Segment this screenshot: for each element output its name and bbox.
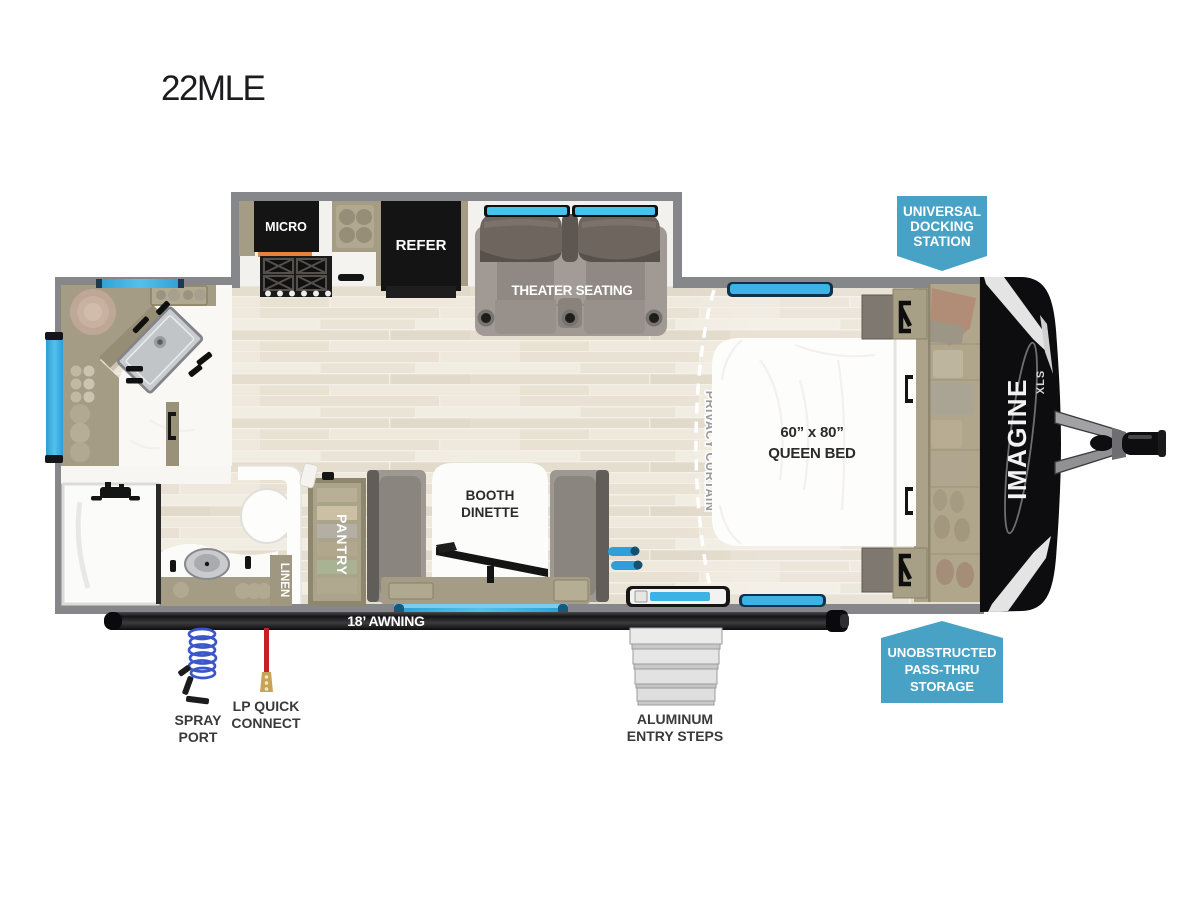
svg-text:ALUMINUM: ALUMINUM xyxy=(637,711,713,727)
svg-text:LP QUICK: LP QUICK xyxy=(233,698,300,714)
svg-text:DOCKING: DOCKING xyxy=(910,219,974,234)
svg-text:PASS-THRU: PASS-THRU xyxy=(905,662,980,677)
svg-text:REFER: REFER xyxy=(396,237,447,254)
svg-text:BOOTH: BOOTH xyxy=(466,488,515,503)
svg-text:XLS: XLS xyxy=(1035,370,1047,394)
svg-text:IMAGINE: IMAGINE xyxy=(1002,378,1032,500)
svg-text:STATION: STATION xyxy=(913,234,970,249)
svg-text:18’ AWNING: 18’ AWNING xyxy=(347,613,425,629)
svg-text:STORAGE: STORAGE xyxy=(910,679,974,694)
svg-text:THEATER SEATING: THEATER SEATING xyxy=(511,283,632,298)
svg-text:PORT: PORT xyxy=(179,729,218,745)
svg-text:CONNECT: CONNECT xyxy=(231,715,301,731)
svg-text:SPRAY: SPRAY xyxy=(175,712,223,728)
svg-text:22MLE: 22MLE xyxy=(161,69,265,108)
svg-text:UNOBSTRUCTED: UNOBSTRUCTED xyxy=(887,645,996,660)
svg-text:UNIVERSAL: UNIVERSAL xyxy=(903,204,981,219)
svg-text:LINEN: LINEN xyxy=(278,563,290,598)
svg-text:QUEEN BED: QUEEN BED xyxy=(768,445,856,462)
svg-text:60” x 80”: 60” x 80” xyxy=(780,424,843,441)
svg-text:DINETTE: DINETTE xyxy=(461,505,519,520)
svg-text:MICRO: MICRO xyxy=(265,220,307,234)
svg-text:PANTRY: PANTRY xyxy=(334,514,350,576)
svg-text:ENTRY STEPS: ENTRY STEPS xyxy=(627,728,723,744)
